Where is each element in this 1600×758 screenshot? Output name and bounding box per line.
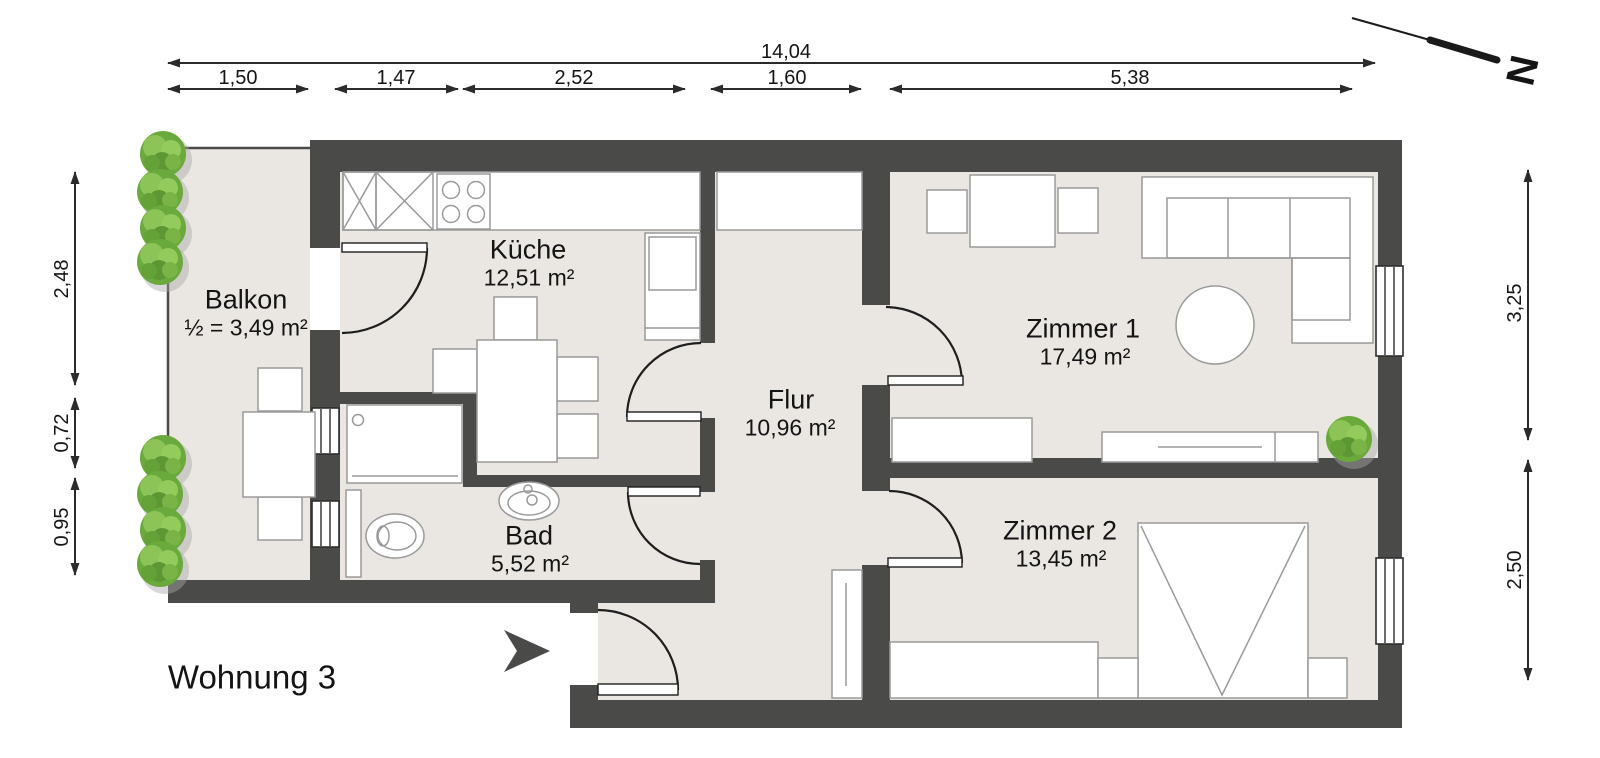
dim-right-1: 3,25 (1505, 284, 1525, 323)
apartment-title: Wohnung 3 (168, 661, 336, 694)
chair (433, 349, 477, 393)
bath-window-upper (312, 408, 339, 454)
room-label-zimmer1: Zimmer 1 (1026, 316, 1140, 343)
sink-icon (499, 482, 559, 520)
shrub-row-top (137, 131, 192, 292)
hall-wardrobe (832, 570, 862, 698)
room-area-balkon: ½ = 3,49 m² (184, 317, 307, 340)
room-area-zimmer2: 13,45 m² (1016, 548, 1107, 571)
bath-window-lower (312, 501, 339, 547)
desk (970, 175, 1055, 247)
room-label-kueche: Küche (490, 237, 567, 264)
room1-window (1376, 266, 1403, 356)
stove-icon (437, 174, 490, 229)
dining-table (477, 340, 557, 462)
room-label-flur: Flur (768, 387, 815, 414)
dim-top-3: 2,52 (555, 68, 594, 88)
room-area-kueche: 12,51 m² (484, 267, 575, 290)
dim-top-2: 1,47 (377, 68, 416, 88)
round-table (1176, 286, 1254, 364)
chair (258, 368, 302, 411)
dim-right-2: 2,50 (1505, 551, 1525, 590)
room-area-zimmer1: 17,49 m² (1040, 346, 1131, 369)
chair (1058, 188, 1098, 233)
entrance-arrow-icon (504, 630, 550, 672)
double-bed (1138, 523, 1308, 698)
dresser (890, 642, 1098, 698)
tall-fridge (645, 233, 700, 340)
balcony-table (243, 412, 315, 497)
room-label-balkon: Balkon (205, 287, 288, 314)
dim-left-2: 0,72 (52, 414, 72, 453)
dim-top-4: 1,60 (768, 68, 807, 88)
shrub-row-bottom (137, 435, 192, 594)
chair (258, 497, 302, 540)
dim-total-width: 14,04 (761, 42, 811, 62)
chair (927, 190, 967, 233)
room-label-bad: Bad (505, 523, 553, 550)
room-label-zimmer2: Zimmer 2 (1003, 518, 1117, 545)
room2-window (1376, 558, 1403, 644)
floorplan-drawing (0, 0, 1600, 758)
dim-left-1: 2,48 (52, 260, 72, 299)
room-area-bad: 5,52 m² (491, 553, 569, 576)
shower-icon (347, 405, 462, 483)
floorplan-canvas: Balkon ½ = 3,49 m² Küche 12,51 m² Bad 5,… (0, 0, 1600, 758)
kitchen-counter (343, 172, 700, 230)
dim-top-1: 1,50 (219, 68, 258, 88)
dim-left-3: 0,95 (52, 508, 72, 547)
lowboard (892, 418, 1032, 462)
chair (494, 297, 537, 340)
dim-top-5: 5,38 (1111, 68, 1150, 88)
room-area-flur: 10,96 m² (745, 417, 836, 440)
sideboard (1102, 432, 1318, 462)
chair (557, 357, 598, 401)
nightstand-left (1098, 658, 1138, 698)
built-in-closet (717, 172, 862, 230)
nightstand-right (1308, 658, 1347, 698)
chair (557, 414, 598, 458)
north-arrow-icon (1352, 18, 1497, 60)
